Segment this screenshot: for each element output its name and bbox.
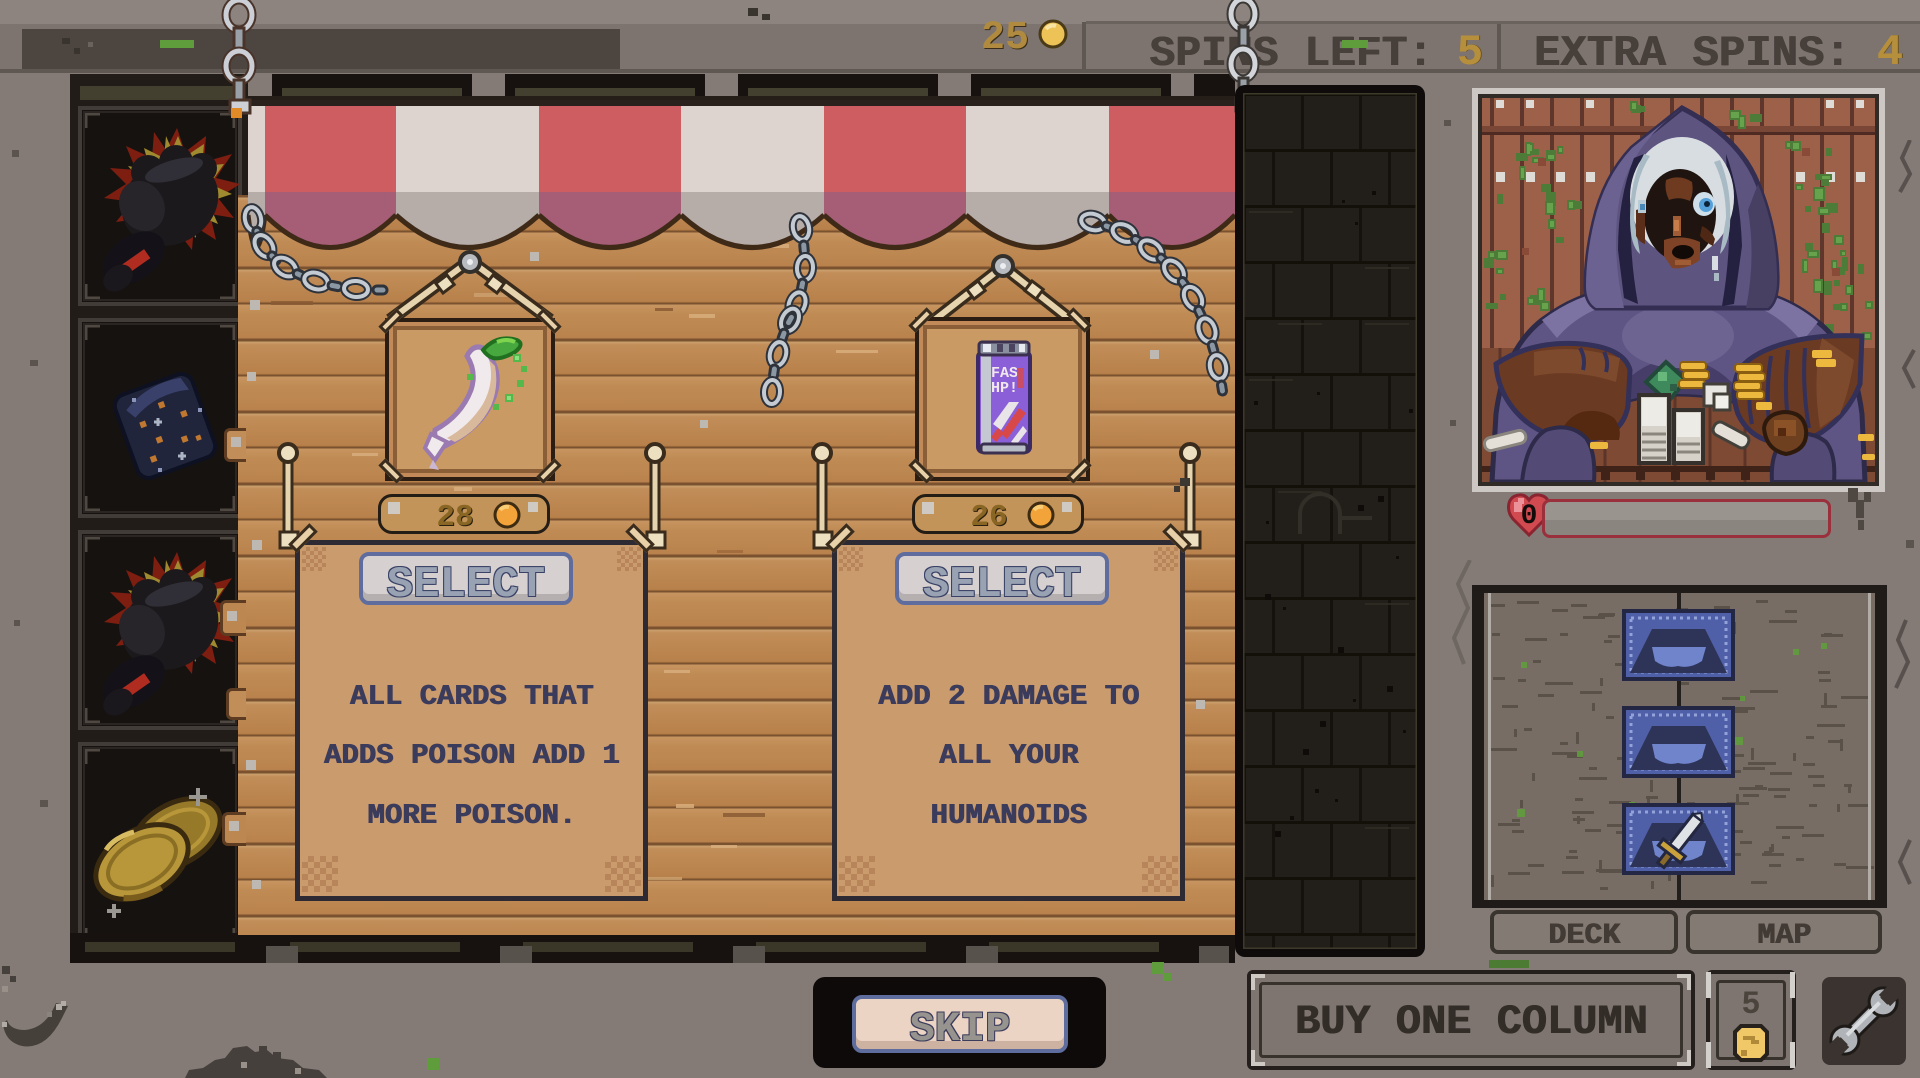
svg-text:HP!: HP!: [991, 380, 1018, 397]
svg-text:0: 0: [1521, 501, 1538, 532]
